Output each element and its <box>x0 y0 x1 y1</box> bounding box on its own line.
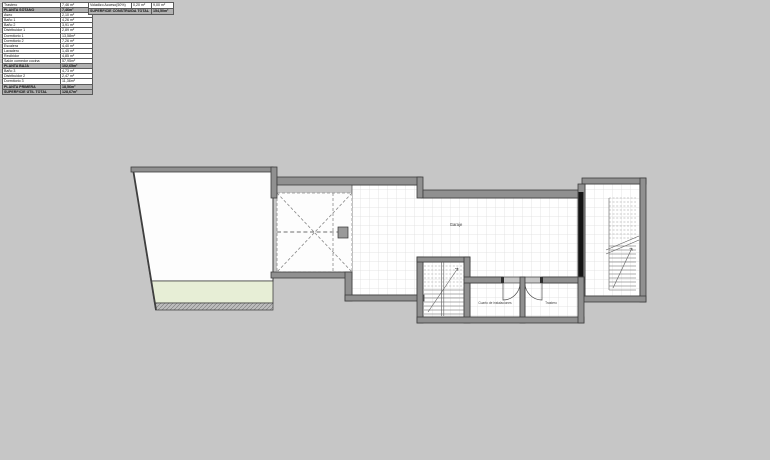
exterior-stair-room-floor <box>585 184 640 296</box>
floor-plan: Garaje Cuarto de instalaciones Trastero <box>0 0 770 460</box>
wall-stairwell-left <box>417 257 423 323</box>
wall-stairroom-top <box>582 178 646 184</box>
drawing-canvas: Trastero7,46 m² PLANTA SÓTANO7,46m² Aseo… <box>0 0 770 460</box>
wall-stairroom-bottom <box>582 296 646 302</box>
utility-room-floor <box>470 283 520 317</box>
wall-terrace-top <box>131 167 273 172</box>
wall-ramp-bottom <box>271 272 352 278</box>
storage-room-floor <box>525 283 578 317</box>
wall-garage-bottom-west <box>345 295 424 301</box>
wall-stairwell-right <box>464 257 470 323</box>
storage-room-label: Trastero <box>545 301 557 305</box>
wall-rooms-bottom <box>417 317 584 323</box>
door-jamb-left <box>501 277 504 283</box>
wall-rooms-divider <box>520 277 525 323</box>
wall-connector <box>271 167 277 198</box>
terrace-edge-wall <box>155 303 274 310</box>
door-jamb-right <box>540 277 543 283</box>
garage-label: Garaje <box>450 222 463 227</box>
column-block <box>338 227 348 238</box>
wall-stairwell-top <box>417 257 470 262</box>
terrace-floor <box>133 169 273 281</box>
wall-top-west <box>277 177 421 185</box>
wall-top-jog <box>417 177 423 198</box>
utility-room-label: Cuarto de instalaciones <box>478 301 512 305</box>
wall-rooms-east <box>578 277 584 323</box>
wall-top-east <box>423 190 582 198</box>
wall-stairroom-right <box>640 178 646 302</box>
wall-rooms-top-west <box>464 277 503 283</box>
pool-strip <box>151 281 273 303</box>
ramp-void <box>277 193 352 272</box>
terrace-area <box>133 169 273 310</box>
